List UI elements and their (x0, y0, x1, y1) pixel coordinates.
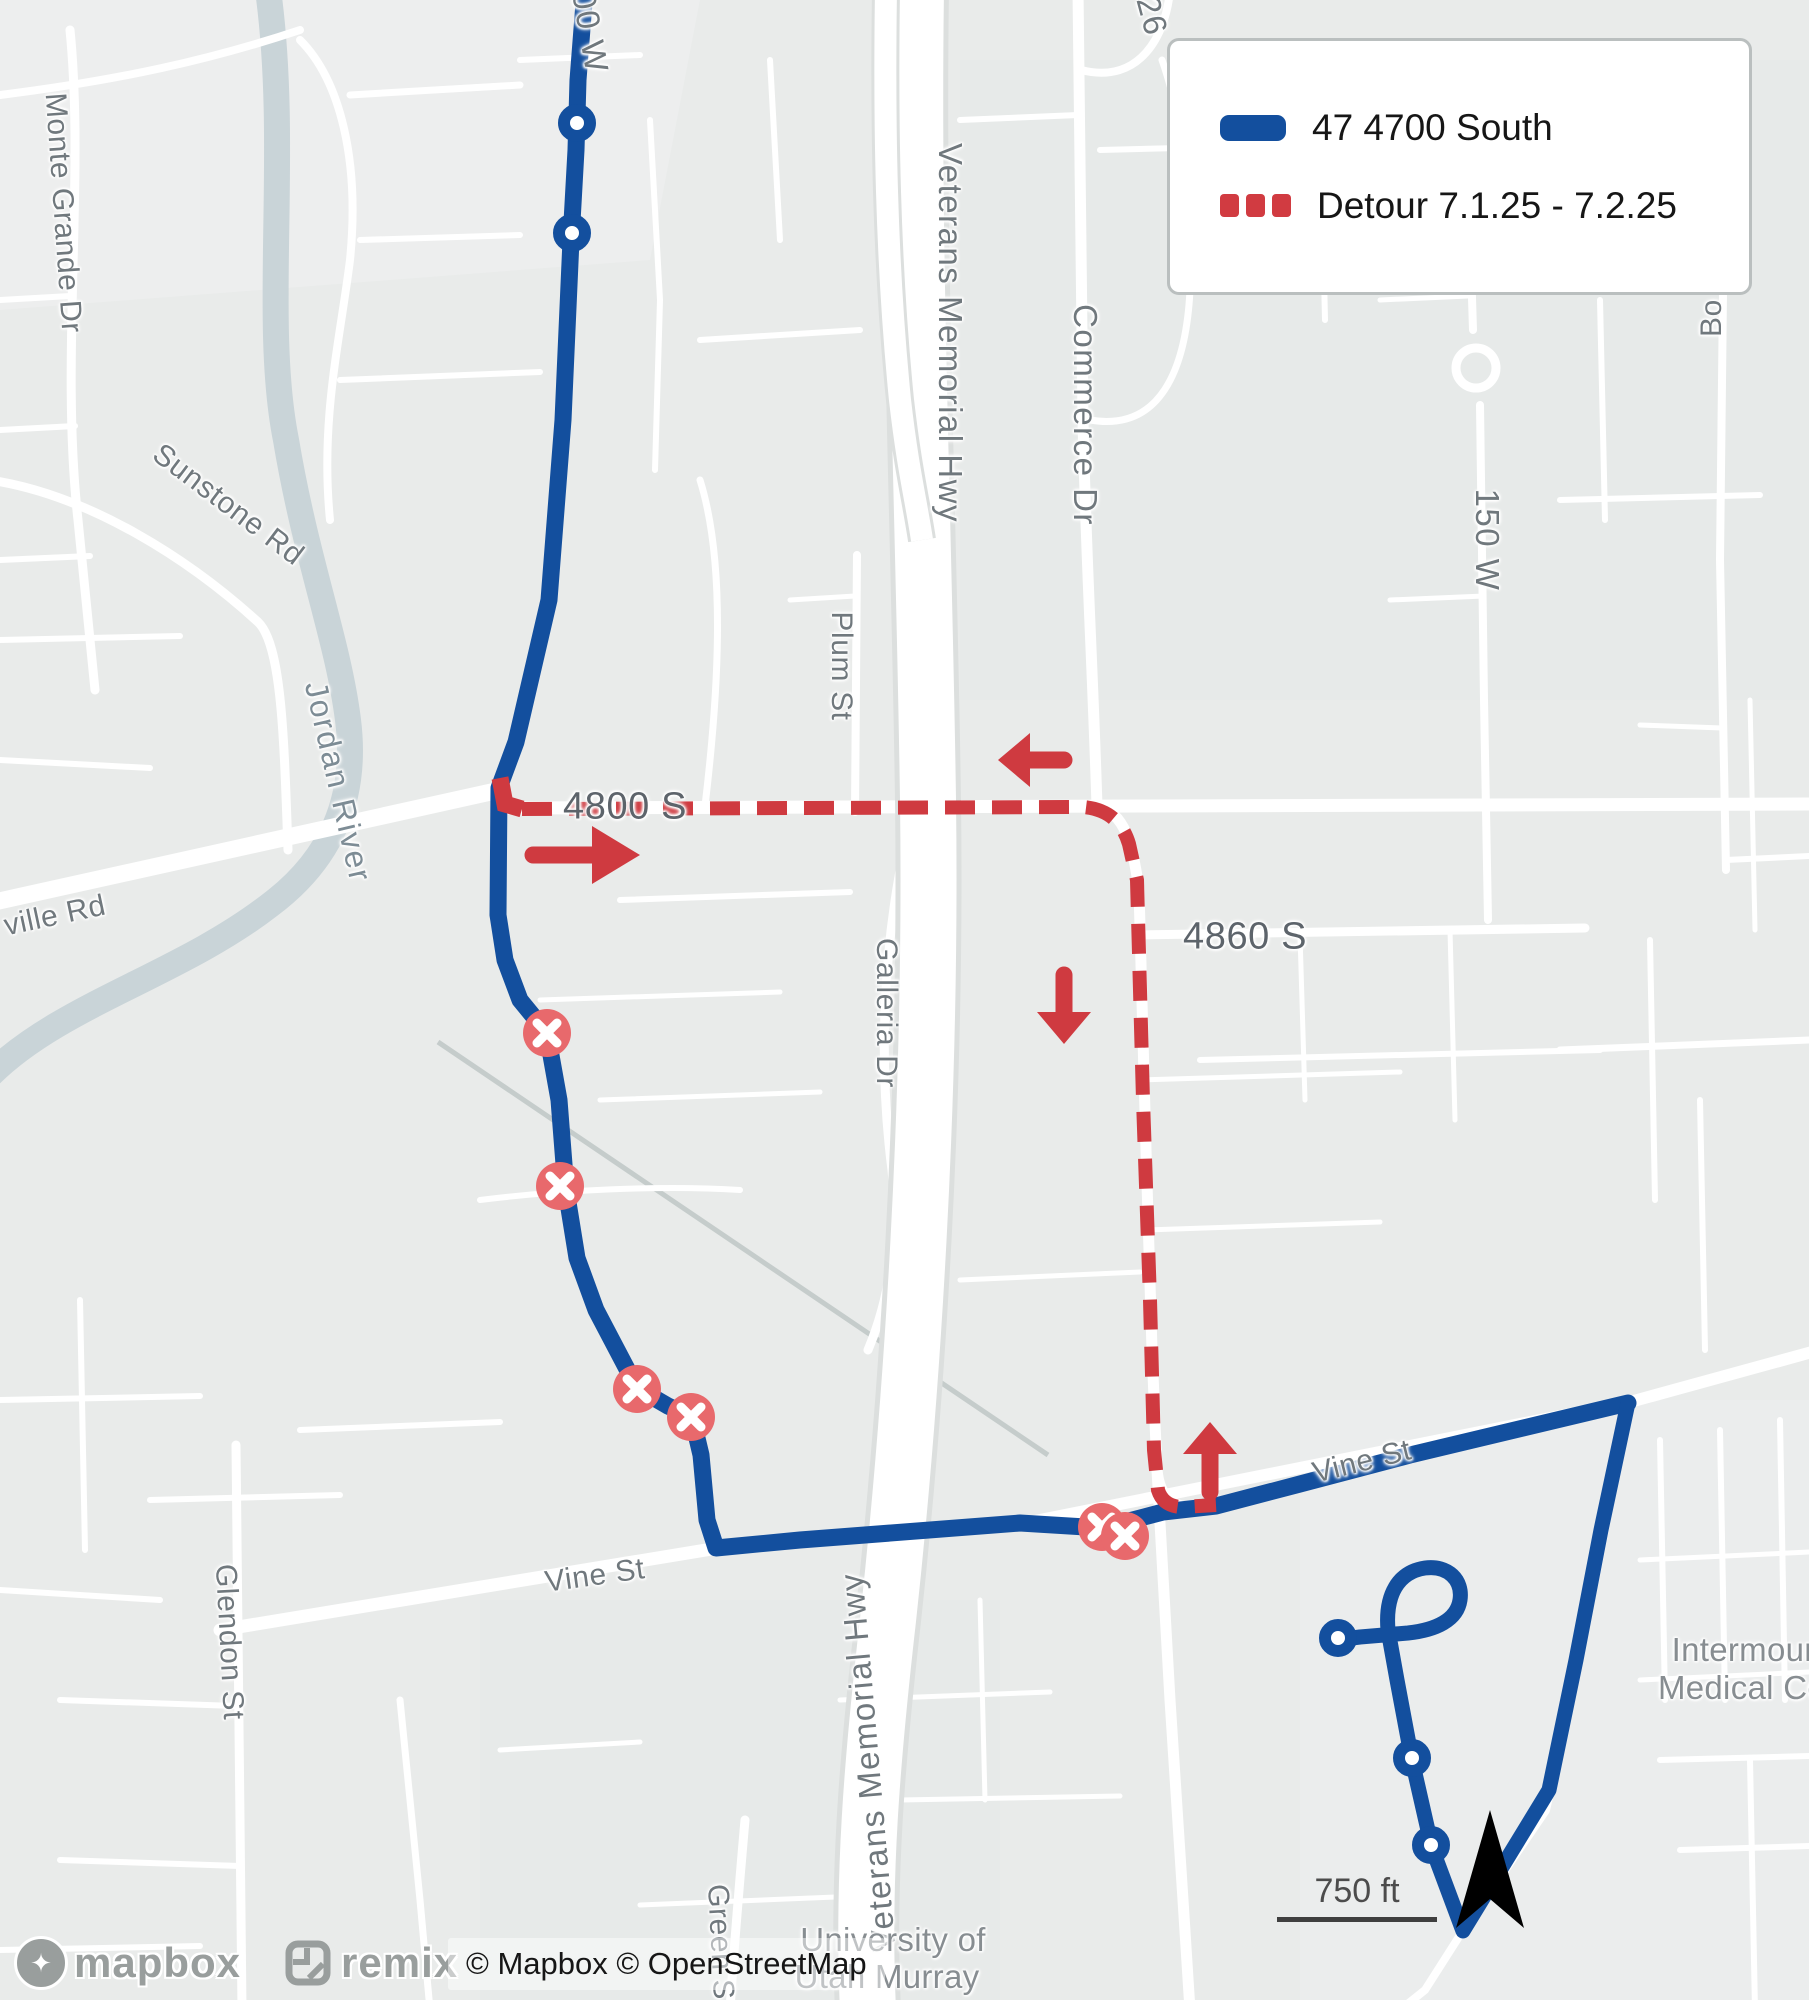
closed-stop-icon (523, 1009, 571, 1057)
closed-stop-icon (613, 1365, 661, 1413)
map-label: Galleria Dr (869, 938, 903, 1088)
route-legend-label: 47 4700 South (1312, 107, 1553, 149)
bus-stop-marker (1418, 1832, 1444, 1858)
map-label: 4860 S (1183, 916, 1307, 959)
closed-stop-icon (536, 1162, 584, 1210)
map-label: Veterans Memorial Hwy (931, 143, 969, 523)
map-label: Intermount (1672, 1631, 1809, 1669)
map-label: Plum St (824, 611, 858, 720)
detour-line-swatch (1220, 194, 1291, 217)
scale-bar: 750 ft (1277, 1872, 1437, 1922)
remix-logo[interactable]: remix (285, 1939, 458, 1987)
detour-legend-label: Detour 7.1.25 - 7.2.25 (1317, 185, 1677, 227)
map-artwork (0, 0, 1809, 2000)
closed-stop-icon (667, 1393, 715, 1441)
mapbox-logo[interactable]: ✦ mapbox (14, 1936, 241, 1990)
remix-wordmark: remix (341, 1939, 458, 1987)
map-label: Bo (1695, 299, 1729, 337)
map-label: Medical Ce (1658, 1669, 1809, 1707)
route-line-swatch (1220, 115, 1286, 141)
legend-row-route: 47 4700 South (1220, 107, 1749, 149)
mapbox-pin-icon: ✦ (14, 1936, 68, 1990)
logo-strip: ✦ mapbox remix (14, 1936, 458, 1990)
closed-stop-icon (1101, 1512, 1149, 1560)
bus-stop-marker (564, 110, 590, 136)
map-label: Commerce Dr (1066, 304, 1104, 526)
scale-bar-line (1277, 1917, 1437, 1922)
map-label: 4800 S (563, 786, 687, 829)
mapbox-wordmark: mapbox (74, 1939, 241, 1987)
remix-icon (285, 1940, 331, 1986)
legend-row-detour: Detour 7.1.25 - 7.2.25 (1220, 185, 1749, 227)
bus-stop-marker (1399, 1745, 1425, 1771)
map-attribution[interactable]: © Mapbox © OpenStreetMap (448, 1938, 885, 1990)
bus-stop-marker (1325, 1625, 1351, 1651)
legend-panel: 47 4700 South Detour 7.1.25 - 7.2.25 (1167, 38, 1752, 295)
map-canvas[interactable]: 00 WMonte Grande DrSunstone RdJordan Riv… (0, 0, 1809, 2000)
bus-stop-marker (559, 220, 585, 246)
map-label: 150 W (1468, 489, 1506, 592)
scale-bar-label: 750 ft (1277, 1872, 1437, 1911)
